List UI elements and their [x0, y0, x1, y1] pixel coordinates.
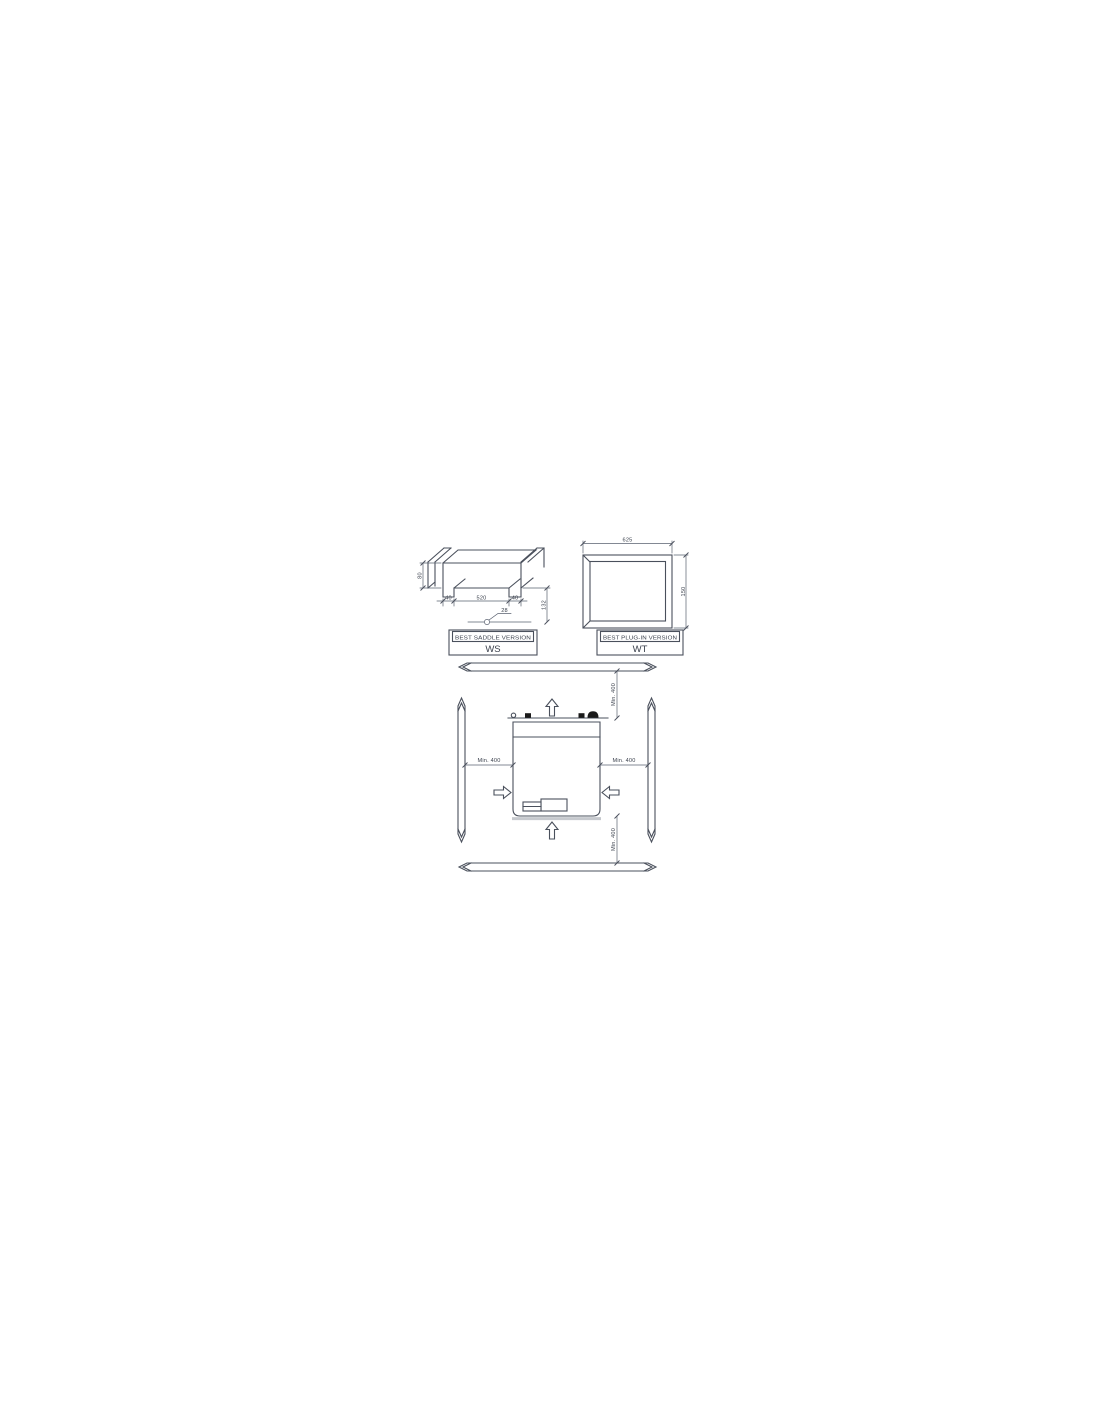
installation-clearance-diagram: Min. 400 Min. 400 Min. 400 Min. 400 — [458, 663, 656, 871]
wt-label-box: BEST PLUG-IN VERSION WT — [597, 630, 683, 655]
ws-label-box: BEST SADDLE VERSION WS — [449, 630, 537, 655]
plugin-panel-drawing — [583, 555, 672, 628]
wt-version-title: BEST PLUG-IN VERSION — [603, 635, 677, 641]
ws-span-dim-label: 520 — [477, 596, 487, 602]
technical-drawing-page: 80 40 520 40 132 28 BEST SADDLE VERSION … — [0, 0, 1100, 1422]
clearance-left-label: Min. 400 — [477, 758, 500, 764]
ws-right-foot-dim-label: 40 — [512, 596, 519, 602]
wt-height-dim-label: 150 — [681, 587, 687, 597]
clearance-top-label: Min. 400 — [611, 683, 617, 706]
wt-width-dim-label: 625 — [623, 538, 633, 544]
airflow-right-left-arrow-icon — [602, 787, 619, 799]
airflow-top-up-arrow-icon — [546, 699, 558, 716]
ws-hole-dim-label: 28 — [501, 608, 508, 614]
mounting-knob-icon — [588, 711, 599, 718]
ws-dimensions: 80 40 520 40 132 28 — [418, 561, 551, 625]
mounting-eyelet-icon — [511, 713, 515, 717]
ws-saddle-view: 80 40 520 40 132 28 BEST SADDLE VERSION … — [418, 548, 551, 655]
ws-version-title: BEST SADDLE VERSION — [455, 635, 531, 641]
wall-section-top — [459, 663, 656, 671]
wall-section-left — [458, 698, 465, 842]
technical-drawing-canvas: 80 40 520 40 132 28 BEST SADDLE VERSION … — [0, 0, 1100, 1422]
wt-version-code: WT — [633, 644, 648, 655]
wall-section-right — [648, 698, 655, 842]
ws-drop-dim-label: 132 — [542, 600, 548, 610]
clearance-bottom-label: Min. 400 — [611, 828, 617, 851]
saddle-bracket-drawing — [428, 548, 544, 597]
hole-symbol-icon — [484, 619, 489, 624]
wall-section-bottom — [459, 863, 656, 871]
airflow-left-right-arrow-icon — [494, 787, 511, 799]
appliance-unit — [508, 711, 608, 818]
mounting-bracket-right-icon — [579, 713, 585, 718]
airflow-bottom-up-arrow-icon — [546, 822, 558, 839]
mounting-bracket-left-icon — [525, 713, 531, 718]
ws-height-dim-label: 80 — [418, 572, 424, 579]
wt-plugin-view: 625 150 BEST PLUG-IN VERSION WT — [581, 538, 689, 656]
ws-version-code: WS — [485, 644, 500, 655]
ws-left-foot-dim-label: 40 — [445, 596, 452, 602]
clearance-right-label: Min. 400 — [612, 758, 635, 764]
